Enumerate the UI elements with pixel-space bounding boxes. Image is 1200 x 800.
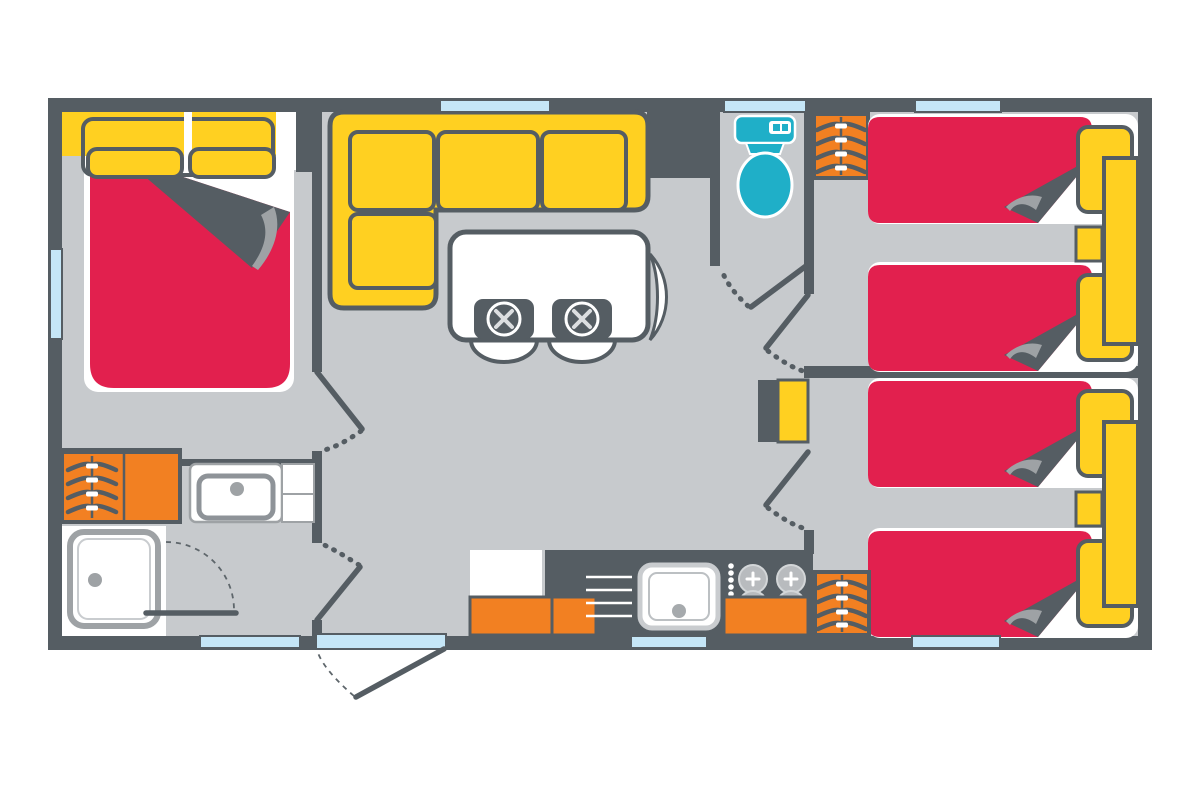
wall-master-head bbox=[296, 112, 322, 172]
window-bedroom-3 bbox=[912, 636, 1000, 648]
wall-master-living bbox=[312, 168, 322, 372]
wall-wc-left bbox=[710, 112, 720, 266]
sofa-cushion bbox=[350, 132, 434, 210]
faucet-dot bbox=[230, 482, 244, 496]
drain-dot bbox=[88, 573, 102, 587]
flush-button-half bbox=[782, 124, 788, 131]
sofa-cushion bbox=[438, 132, 538, 210]
sofa-cushion bbox=[350, 214, 436, 288]
place-setting bbox=[552, 299, 612, 339]
floor-plan bbox=[0, 0, 1200, 800]
single-bed bbox=[868, 378, 1138, 488]
single-bed bbox=[868, 114, 1138, 224]
fridge-unit bbox=[470, 550, 542, 597]
window-kitchen bbox=[631, 636, 707, 648]
glazed-entrance-door bbox=[316, 634, 446, 649]
wardrobe-bedroom-2 bbox=[814, 114, 868, 178]
window-living bbox=[440, 100, 550, 112]
wardrobe-master bbox=[62, 452, 180, 522]
flush-button-half bbox=[773, 124, 780, 131]
kitchen-sink bbox=[640, 565, 718, 628]
pillow bbox=[88, 149, 182, 177]
drain-dot bbox=[672, 604, 686, 618]
entrance bbox=[316, 634, 446, 697]
entrance-door-swing-arc bbox=[318, 653, 354, 696]
toilet bbox=[735, 116, 795, 217]
nightstand bbox=[1076, 227, 1102, 261]
place-setting bbox=[474, 299, 534, 339]
headboard-shelf bbox=[1104, 158, 1138, 344]
single-bed bbox=[868, 262, 1138, 372]
window-shower-room bbox=[200, 636, 300, 648]
counter-cabinet bbox=[724, 597, 808, 635]
window-wc bbox=[724, 100, 806, 112]
pillow bbox=[190, 149, 274, 177]
washbasin bbox=[190, 464, 282, 522]
window-bedroom-2 bbox=[915, 100, 1001, 112]
side-counter bbox=[282, 464, 314, 522]
toilet-bowl bbox=[738, 153, 792, 217]
headboard-shelf bbox=[1104, 422, 1138, 606]
headboard-split bbox=[184, 112, 192, 156]
tall-storage-unit bbox=[647, 112, 711, 178]
entrance-door-leaf bbox=[356, 649, 444, 697]
floor-plan-canvas bbox=[0, 0, 1200, 800]
wardrobe-bedroom-3 bbox=[815, 572, 869, 635]
sofa-cushion bbox=[542, 132, 626, 210]
kitchen bbox=[470, 550, 813, 648]
nightstand bbox=[1076, 492, 1102, 526]
single-bed bbox=[868, 528, 1138, 638]
window-master bbox=[50, 249, 62, 339]
hall-cabinet bbox=[758, 380, 808, 442]
base-cabinets bbox=[470, 597, 596, 635]
